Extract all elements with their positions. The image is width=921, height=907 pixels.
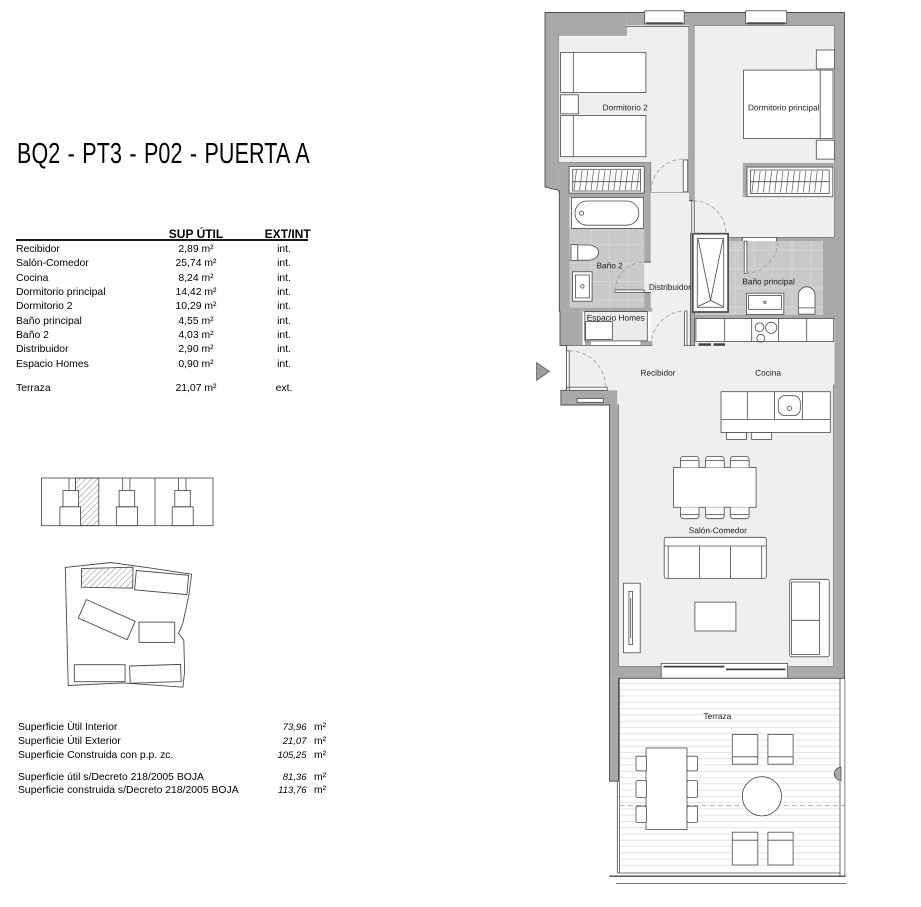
svg-text:Baño 2: Baño 2 [596, 260, 623, 270]
svg-text:Salón-Comedor: Salón-Comedor [689, 525, 747, 535]
svg-text:Recibidor: Recibidor [640, 368, 675, 378]
svg-text:Espacio Homes: Espacio Homes [587, 313, 645, 323]
svg-text:Baño principal: Baño principal [742, 276, 795, 286]
svg-text:Cocina: Cocina [755, 368, 781, 378]
svg-text:Dormitorio 2: Dormitorio 2 [603, 102, 649, 112]
svg-text:Distribuidor: Distribuidor [649, 282, 691, 292]
svg-text:Dormitorio principal: Dormitorio principal [748, 102, 820, 112]
svg-text:Terraza: Terraza [704, 711, 732, 721]
